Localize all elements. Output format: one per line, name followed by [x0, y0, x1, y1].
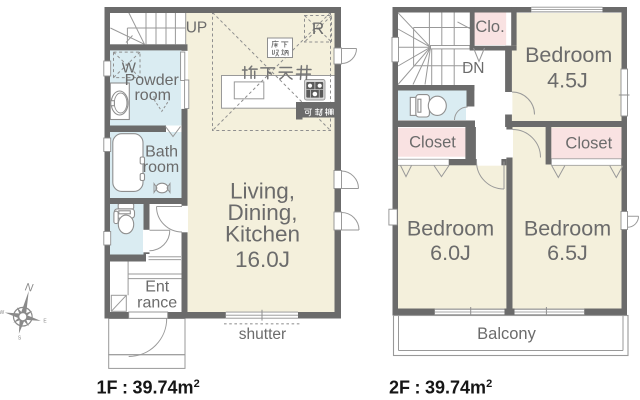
svg-text:Closet: Closet — [409, 134, 456, 152]
svg-text:shutter: shutter — [239, 326, 286, 343]
svg-text:R: R — [312, 19, 324, 38]
svg-text:Bedroom: Bedroom — [407, 217, 494, 241]
svg-text:Bedroom: Bedroom — [525, 43, 612, 67]
svg-text:Clo.: Clo. — [475, 18, 504, 36]
svg-text:6.5J: 6.5J — [547, 241, 588, 265]
svg-text:2F:39.74m2: 2F:39.74m2 — [389, 378, 492, 398]
svg-text:W: W — [0, 310, 4, 316]
svg-text:Bedroom: Bedroom — [524, 217, 611, 241]
svg-text:1F:39.74m2: 1F:39.74m2 — [97, 378, 200, 398]
svg-text:UP: UP — [186, 20, 208, 37]
svg-text:Kitchen: Kitchen — [225, 222, 300, 247]
svg-text:Balcony: Balcony — [477, 325, 536, 343]
svg-text:room: room — [134, 87, 170, 104]
svg-text:DN: DN — [462, 60, 484, 77]
svg-text:rance: rance — [137, 294, 177, 311]
svg-text:room: room — [143, 159, 179, 176]
svg-text:Closet: Closet — [565, 135, 612, 153]
svg-text:4.5J: 4.5J — [547, 69, 588, 93]
svg-text:6.0J: 6.0J — [430, 241, 471, 265]
svg-text:Ent: Ent — [145, 279, 170, 296]
svg-text:16.0J: 16.0J — [235, 247, 290, 272]
